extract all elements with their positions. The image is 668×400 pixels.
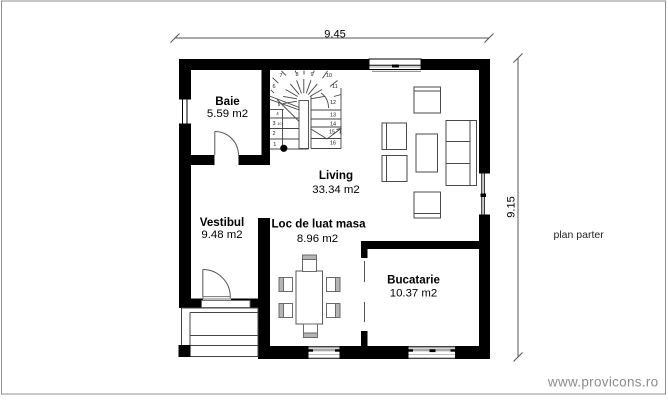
svg-text:Loc de luat masa: Loc de luat masa (271, 218, 366, 231)
svg-text:9: 9 (310, 72, 313, 78)
svg-text:Bucatarie: Bucatarie (387, 274, 440, 287)
svg-text:1: 1 (273, 142, 276, 148)
svg-text:13: 13 (330, 113, 336, 119)
svg-text:15: 15 (329, 130, 335, 136)
svg-text:8.96 m2: 8.96 m2 (297, 233, 338, 245)
svg-text:33.34 m2: 33.34 m2 (312, 184, 360, 196)
svg-text:3: 3 (272, 121, 275, 127)
svg-text:5.59 m2: 5.59 m2 (207, 108, 248, 120)
svg-text:14: 14 (330, 122, 336, 128)
svg-text:12: 12 (330, 100, 336, 106)
svg-text:www.provicons.ro: www.provicons.ro (547, 375, 659, 390)
svg-text:2: 2 (272, 131, 275, 137)
svg-text:7: 7 (279, 73, 282, 79)
svg-text:Baie: Baie (215, 95, 240, 108)
svg-text:11: 11 (332, 84, 338, 90)
svg-text:9.15: 9.15 (506, 196, 518, 217)
svg-text:10.37 m2: 10.37 m2 (390, 288, 438, 300)
svg-text:9.45: 9.45 (324, 28, 345, 40)
svg-text:plan parter: plan parter (554, 229, 605, 241)
svg-text:Vestibul: Vestibul (200, 216, 244, 229)
svg-text:8: 8 (295, 72, 298, 78)
svg-text:10: 10 (326, 73, 332, 79)
svg-text:10: 10 (278, 122, 282, 126)
svg-text:6: 6 (272, 84, 275, 90)
svg-text:Living: Living (319, 169, 353, 182)
svg-text:9.48 m2: 9.48 m2 (201, 229, 242, 241)
svg-text:16: 16 (330, 141, 336, 147)
